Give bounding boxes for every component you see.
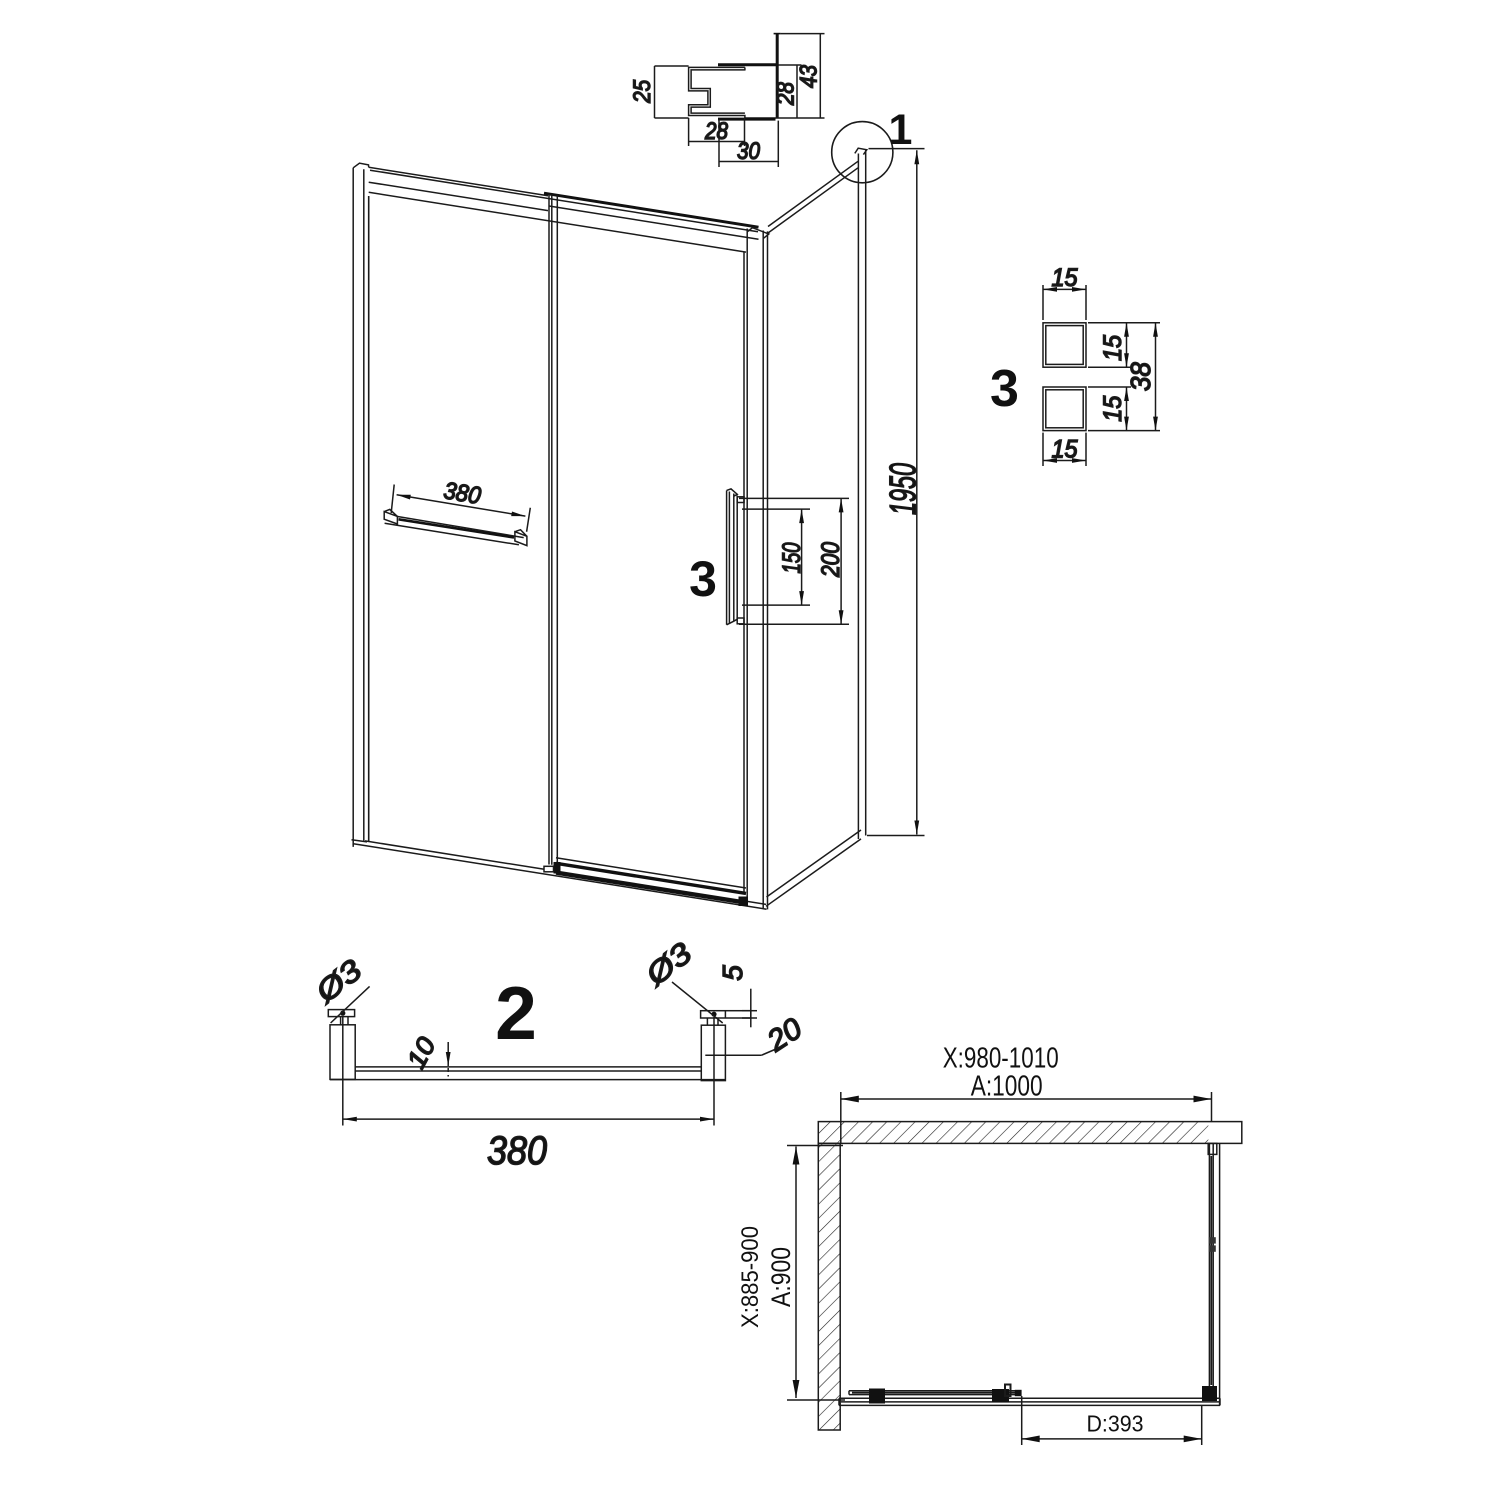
svg-text:38: 38 (1125, 362, 1156, 391)
svg-text:15: 15 (1099, 335, 1127, 361)
svg-text:380: 380 (487, 1129, 547, 1173)
svg-text:2: 2 (495, 971, 537, 1055)
svg-text:15: 15 (1099, 396, 1127, 422)
svg-text:3: 3 (689, 551, 717, 607)
svg-text:15: 15 (1052, 436, 1078, 464)
svg-text:A:1000: A:1000 (971, 1071, 1043, 1103)
svg-text:25: 25 (629, 79, 656, 103)
svg-text:28: 28 (704, 118, 728, 145)
svg-text:X:885-900: X:885-900 (737, 1226, 764, 1328)
svg-text:30: 30 (737, 138, 761, 165)
svg-text:43: 43 (796, 64, 823, 88)
svg-text:1950: 1950 (883, 463, 924, 515)
svg-text:15: 15 (1052, 264, 1078, 292)
svg-text:5: 5 (717, 965, 748, 981)
svg-text:1: 1 (889, 106, 913, 154)
svg-text:20: 20 (761, 1012, 809, 1059)
svg-text:200: 200 (817, 542, 845, 578)
svg-text:3: 3 (990, 360, 1019, 418)
svg-text:D:393: D:393 (1087, 1411, 1144, 1437)
svg-text:150: 150 (778, 542, 806, 573)
svg-text:Ø3: Ø3 (639, 937, 698, 994)
svg-text:A:900: A:900 (766, 1247, 796, 1307)
svg-text:380: 380 (442, 477, 484, 510)
svg-text:Ø3: Ø3 (309, 954, 368, 1011)
